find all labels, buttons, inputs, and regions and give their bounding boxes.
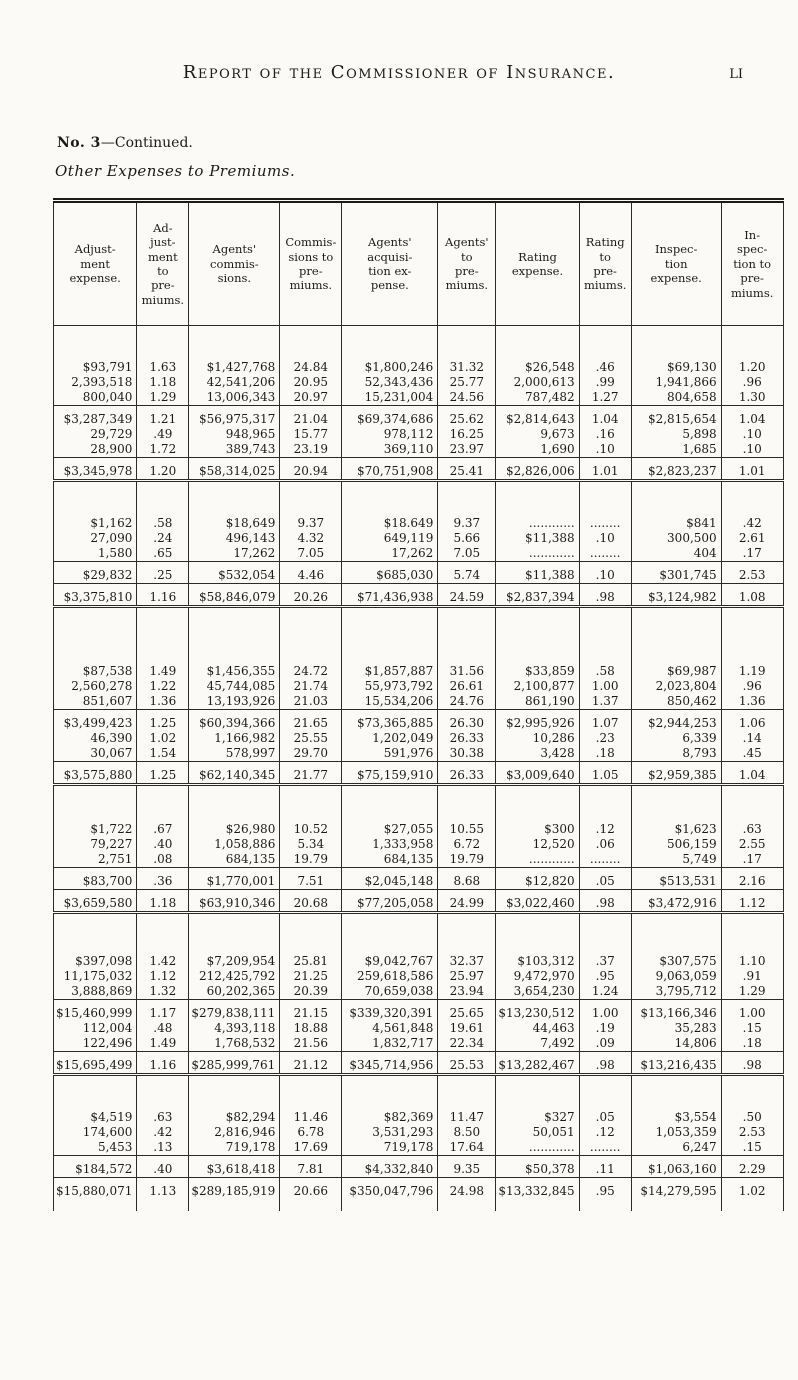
table-cell: $12,820 — [496, 874, 579, 890]
table-cell: 1.21 — [137, 412, 189, 427]
table-cell: 20.94 — [280, 464, 342, 481]
table-cell: 948,965 — [189, 427, 280, 442]
table-cell: $1,770,001 — [189, 874, 280, 890]
spacer-cell — [579, 490, 631, 516]
spacer-cell — [631, 1199, 721, 1211]
spacer-cell — [721, 1084, 783, 1110]
table-cell: 506,159 — [631, 837, 721, 852]
table-cell: 9,673 — [496, 427, 579, 442]
table-cell: $9,042,767 — [342, 954, 438, 969]
table-cell: $2,045,148 — [342, 874, 438, 890]
spacer-cell — [438, 1199, 496, 1211]
table-cell: 32.37 — [438, 954, 496, 969]
rule-cell — [496, 481, 579, 491]
table-cell: .15 — [721, 1021, 783, 1036]
table-cell: 35,283 — [631, 1021, 721, 1036]
rule-cell — [137, 481, 189, 491]
table-row: $87,5381.49$1,456,35524.72$1,857,88731.5… — [54, 664, 784, 679]
rule-cell — [721, 785, 783, 795]
table-cell: 8,793 — [631, 746, 721, 762]
rule-cell — [496, 1075, 579, 1085]
rule-cell — [137, 1075, 189, 1085]
table-cell: 2.53 — [721, 568, 783, 584]
spacer-cell — [496, 922, 579, 954]
table-cell: $60,394,366 — [189, 716, 280, 731]
table-cell: 300,500 — [631, 531, 721, 546]
page-header: Report of the Commissioner of Insurance. — [0, 62, 798, 83]
table-cell: 11,175,032 — [54, 969, 137, 984]
rule-cell — [280, 785, 342, 795]
table-cell: 404 — [631, 546, 721, 562]
spacer-cell — [438, 1084, 496, 1110]
table-cell: 25.62 — [438, 412, 496, 427]
table-cell: 1,580 — [54, 546, 137, 562]
table-row: $15,695,4991.16$285,999,76121.12$345,714… — [54, 1058, 784, 1075]
table-cell: .67 — [137, 822, 189, 837]
table-cell: ........ — [579, 1140, 631, 1156]
table-cell: 1.20 — [137, 464, 189, 481]
table-cell: 21.77 — [280, 768, 342, 785]
column-header: Adjust- ment expense. — [54, 201, 137, 326]
double-rule-row — [54, 913, 784, 923]
rule-cell — [631, 607, 721, 617]
table-header-row: Adjust- ment expense.Ad- just- ment to p… — [54, 201, 784, 326]
table-cell: 2,023,804 — [631, 679, 721, 694]
table-cell: 18.88 — [280, 1021, 342, 1036]
table-cell: $345,714,956 — [342, 1058, 438, 1075]
table-cell: $87,538 — [54, 664, 137, 679]
rule-cell — [280, 607, 342, 617]
table-cell: $3,472,916 — [631, 896, 721, 913]
table-cell: $7,209,954 — [189, 954, 280, 969]
table-cell: 19.79 — [438, 852, 496, 868]
table-cell: 1.36 — [721, 694, 783, 710]
spacer-cell — [280, 1199, 342, 1211]
table-cell: 174,600 — [54, 1125, 137, 1140]
table-cell: 1.24 — [579, 984, 631, 1000]
table-cell: $71,436,938 — [342, 590, 438, 607]
table-cell: $685,030 — [342, 568, 438, 584]
table-cell: 6.72 — [438, 837, 496, 852]
spacer-cell — [137, 922, 189, 954]
table-cell: 26.30 — [438, 716, 496, 731]
table-cell: 1,202,049 — [342, 731, 438, 746]
table-row: $1,722.67$26,98010.52$27,05510.55$300.12… — [54, 822, 784, 837]
table-cell: .23 — [579, 731, 631, 746]
table-cell: .98 — [579, 1058, 631, 1075]
rule-cell — [438, 481, 496, 491]
table-cell: $327 — [496, 1110, 579, 1125]
table-cell: 804,658 — [631, 390, 721, 406]
spacer-row — [54, 616, 784, 664]
table-row: $397,0981.42$7,209,95425.81$9,042,76732.… — [54, 954, 784, 969]
rule-cell — [54, 913, 137, 923]
table-cell: 1.19 — [721, 664, 783, 679]
rule-cell — [438, 785, 496, 795]
rule-cell — [579, 607, 631, 617]
table-cell: 1.30 — [721, 390, 783, 406]
table-cell: 21.25 — [280, 969, 342, 984]
table-cell: $69,374,686 — [342, 412, 438, 427]
spacer-cell — [280, 794, 342, 822]
table-cell: 1.63 — [137, 360, 189, 375]
table-cell: .17 — [721, 546, 783, 562]
table-cell: $29,832 — [54, 568, 137, 584]
table-cell: 1.29 — [721, 984, 783, 1000]
rule-cell — [631, 1075, 721, 1085]
table-cell: $4,332,840 — [342, 1162, 438, 1178]
table-row: 112,004.484,393,11818.884,561,84819.6144… — [54, 1021, 784, 1036]
table-cell: $2,823,237 — [631, 464, 721, 481]
table-cell: 1.07 — [579, 716, 631, 731]
table-cell: .16 — [579, 427, 631, 442]
table-cell: .13 — [137, 1140, 189, 1156]
table-cell: 1,832,717 — [342, 1036, 438, 1052]
spacer-cell — [721, 490, 783, 516]
table-cell: .24 — [137, 531, 189, 546]
table-cell: 1,166,982 — [189, 731, 280, 746]
table-cell: 6.78 — [280, 1125, 342, 1140]
spacer-cell — [54, 326, 137, 361]
table-cell: ............ — [496, 546, 579, 562]
spacer-cell — [438, 490, 496, 516]
rule-cell — [342, 481, 438, 491]
table-cell: 5,749 — [631, 852, 721, 868]
spacer-cell — [579, 922, 631, 954]
rule-cell — [137, 607, 189, 617]
table-row: $83,700.36$1,770,0017.51$2,045,1488.68$1… — [54, 874, 784, 890]
table-cell: 3,428 — [496, 746, 579, 762]
table-cell: .10 — [579, 531, 631, 546]
table-cell: ........ — [579, 852, 631, 868]
table-cell: $69,987 — [631, 664, 721, 679]
spacer-cell — [342, 616, 438, 664]
spacer-cell — [721, 794, 783, 822]
table-row: $3,375,8101.16$58,846,07920.26$71,436,93… — [54, 590, 784, 607]
table-cell: 79,227 — [54, 837, 137, 852]
table-cell: 11.47 — [438, 1110, 496, 1125]
table-cell: .50 — [721, 1110, 783, 1125]
rule-cell — [438, 1075, 496, 1085]
rule-cell — [189, 1075, 280, 1085]
table-row: 2,560,2781.2245,744,08521.7455,973,79226… — [54, 679, 784, 694]
table-cell: 9.35 — [438, 1162, 496, 1178]
spacer-row — [54, 326, 784, 361]
table-cell: $103,312 — [496, 954, 579, 969]
table-cell: 3,795,712 — [631, 984, 721, 1000]
table-cell: 7.81 — [280, 1162, 342, 1178]
table-cell: .09 — [579, 1036, 631, 1052]
table-cell: 24.84 — [280, 360, 342, 375]
table-cell: 20.97 — [280, 390, 342, 406]
table-cell: .10 — [579, 442, 631, 458]
table-cell: 1.29 — [137, 390, 189, 406]
table-cell: .96 — [721, 679, 783, 694]
table-cell: $75,159,910 — [342, 768, 438, 785]
spacer-cell — [189, 1084, 280, 1110]
column-header: Inspec- tion expense. — [631, 201, 721, 326]
table-cell: 19.61 — [438, 1021, 496, 1036]
table-cell: 55,973,792 — [342, 679, 438, 694]
spacer-cell — [280, 922, 342, 954]
table-cell: 3,654,230 — [496, 984, 579, 1000]
table-cell: 578,997 — [189, 746, 280, 762]
table-row: 174,600.422,816,9466.783,531,2938.5050,0… — [54, 1125, 784, 1140]
rule-cell — [137, 785, 189, 795]
spacer-row — [54, 922, 784, 954]
table-row: $29,832.25$532,0544.46$685,0305.74$11,38… — [54, 568, 784, 584]
table-cell: .63 — [137, 1110, 189, 1125]
spacer-cell — [342, 490, 438, 516]
rule-cell — [631, 785, 721, 795]
spacer-cell — [342, 922, 438, 954]
table-cell: 591,976 — [342, 746, 438, 762]
rule-cell — [189, 481, 280, 491]
spacer-cell — [342, 1084, 438, 1110]
table-cell: $4,519 — [54, 1110, 137, 1125]
table-cell: 6,247 — [631, 1140, 721, 1156]
table-cell: $33,859 — [496, 664, 579, 679]
rule-cell — [631, 481, 721, 491]
table-cell: 1.18 — [137, 375, 189, 390]
rule-cell — [342, 1075, 438, 1085]
table-cell: 122,496 — [54, 1036, 137, 1052]
table-cell: 13,006,343 — [189, 390, 280, 406]
table-cell: 1.72 — [137, 442, 189, 458]
table-cell: 719,178 — [342, 1140, 438, 1156]
table-cell: 9.37 — [280, 516, 342, 531]
table-row: $15,460,9991.17$279,838,11121.15$339,320… — [54, 1006, 784, 1021]
table-cell: 2,751 — [54, 852, 137, 868]
table-cell: 1.25 — [137, 768, 189, 785]
table-cell: 1.02 — [137, 731, 189, 746]
table-cell: 1.25 — [137, 716, 189, 731]
table-cell: 17.64 — [438, 1140, 496, 1156]
table-cell: 4.46 — [280, 568, 342, 584]
table-cell: $58,314,025 — [189, 464, 280, 481]
table-cell: .18 — [721, 1036, 783, 1052]
table-cell: 7.51 — [280, 874, 342, 890]
table-cell: .14 — [721, 731, 783, 746]
rule-cell — [54, 1075, 137, 1085]
table-cell: $13,230,512 — [496, 1006, 579, 1021]
table-cell: $350,047,796 — [342, 1184, 438, 1199]
table-cell: 13,193,926 — [189, 694, 280, 710]
rule-cell — [721, 913, 783, 923]
table-cell: 29.70 — [280, 746, 342, 762]
table-cell: 31.32 — [438, 360, 496, 375]
table-cell: 1.01 — [579, 464, 631, 481]
table-cell: 5.34 — [280, 837, 342, 852]
table-cell: 1.22 — [137, 679, 189, 694]
table-cell: 24.72 — [280, 664, 342, 679]
spacer-cell — [579, 1084, 631, 1110]
table-cell: $3,009,640 — [496, 768, 579, 785]
table-cell: $18.649 — [342, 516, 438, 531]
table-cell: 1,058,886 — [189, 837, 280, 852]
table-cell: 21.15 — [280, 1006, 342, 1021]
column-header: In- spec- tion to pre- miums. — [721, 201, 783, 326]
table-cell: 6,339 — [631, 731, 721, 746]
table-row: 2,751.08684,13519.79684,13519.79........… — [54, 852, 784, 868]
table-cell: $3,659,580 — [54, 896, 137, 913]
table-cell: 800,040 — [54, 390, 137, 406]
table-cell: $1,427,768 — [189, 360, 280, 375]
table-cell: 42,541,206 — [189, 375, 280, 390]
table-cell: 1,690 — [496, 442, 579, 458]
table-cell: 23.94 — [438, 984, 496, 1000]
table-cell: 7.05 — [280, 546, 342, 562]
table-cell: .42 — [721, 516, 783, 531]
table-cell: $285,999,761 — [189, 1058, 280, 1075]
table-cell: 25.41 — [438, 464, 496, 481]
spacer-cell — [280, 616, 342, 664]
rule-cell — [579, 481, 631, 491]
table-cell: 1.05 — [579, 768, 631, 785]
table-cell: 369,110 — [342, 442, 438, 458]
table-cell: $27,055 — [342, 822, 438, 837]
table-cell: 26.33 — [438, 768, 496, 785]
rule-cell — [342, 913, 438, 923]
table-cell: 20.66 — [280, 1184, 342, 1199]
spacer-row — [54, 1199, 784, 1211]
spacer-row — [54, 1084, 784, 1110]
table-cell: $3,345,978 — [54, 464, 137, 481]
table-cell: 8.68 — [438, 874, 496, 890]
table-cell: $50,378 — [496, 1162, 579, 1178]
table-cell: 1.20 — [721, 360, 783, 375]
table-cell: $397,098 — [54, 954, 137, 969]
table-cell: 4,393,118 — [189, 1021, 280, 1036]
rule-cell — [438, 607, 496, 617]
table-cell: .17 — [721, 852, 783, 868]
table-cell: 1,941,866 — [631, 375, 721, 390]
table-cell: 1.32 — [137, 984, 189, 1000]
table-cell: $14,279,595 — [631, 1184, 721, 1199]
table-cell: $1,063,160 — [631, 1162, 721, 1178]
table-cell: 851,607 — [54, 694, 137, 710]
spacer-cell — [721, 922, 783, 954]
table-cell: $13,216,435 — [631, 1058, 721, 1075]
table-subtitle: Other Expenses to Premiums. — [55, 162, 295, 180]
table-row: 1,580.6517,2627.0517,2627.05............… — [54, 546, 784, 562]
table-number: No. 3 — [57, 135, 101, 151]
table-cell: $15,460,999 — [54, 1006, 137, 1021]
rule-cell — [280, 913, 342, 923]
table-cell: 2.55 — [721, 837, 783, 852]
table-cell: $307,575 — [631, 954, 721, 969]
spacer-cell — [342, 326, 438, 361]
table-cell: 21.74 — [280, 679, 342, 694]
table-cell: .25 — [137, 568, 189, 584]
table-cell: .19 — [579, 1021, 631, 1036]
table-cell: 16.25 — [438, 427, 496, 442]
rule-cell — [721, 607, 783, 617]
double-rule-row — [54, 1075, 784, 1085]
table-cell: 861,190 — [496, 694, 579, 710]
table-cell: 30,067 — [54, 746, 137, 762]
spacer-cell — [579, 616, 631, 664]
table-cell: $13,282,467 — [496, 1058, 579, 1075]
rule-cell — [579, 913, 631, 923]
table-row: 851,6071.3613,193,92621.0315,534,20624.7… — [54, 694, 784, 710]
table-cell: 4,561,848 — [342, 1021, 438, 1036]
table-cell: $2,826,006 — [496, 464, 579, 481]
document-page: Report of the Commissioner of Insurance.… — [0, 0, 798, 1380]
table-cell: 22.34 — [438, 1036, 496, 1052]
table-cell: 2.61 — [721, 531, 783, 546]
table-cell: $2,995,926 — [496, 716, 579, 731]
rule-cell — [631, 913, 721, 923]
spacer-cell — [54, 616, 137, 664]
table-cell: 25.81 — [280, 954, 342, 969]
table-row: 79,227.401,058,8865.341,333,9586.7212,52… — [54, 837, 784, 852]
table-cell: 21.03 — [280, 694, 342, 710]
table-cell: .15 — [721, 1140, 783, 1156]
table-cell: 978,112 — [342, 427, 438, 442]
table-cell: $1,722 — [54, 822, 137, 837]
table-cell: ........ — [579, 546, 631, 562]
table-cell: $11,388 — [496, 531, 579, 546]
table-cell: ............ — [496, 1140, 579, 1156]
table-cell: $2,944,253 — [631, 716, 721, 731]
rule-cell — [579, 1075, 631, 1085]
table-cell: $2,959,385 — [631, 768, 721, 785]
table-row: $15,880,0711.13$289,185,91920.66$350,047… — [54, 1184, 784, 1199]
spacer-cell — [54, 1084, 137, 1110]
table-cell: 1.49 — [137, 1036, 189, 1052]
table-cell: 25.65 — [438, 1006, 496, 1021]
table-cell: 3,888,869 — [54, 984, 137, 1000]
table-cell: 23.97 — [438, 442, 496, 458]
table-row: 5,453.13719,17817.69719,17817.64........… — [54, 1140, 784, 1156]
table-cell: 850,462 — [631, 694, 721, 710]
table-cell: 1.08 — [721, 590, 783, 607]
table-cell: 1.27 — [579, 390, 631, 406]
spacer-cell — [496, 1199, 579, 1211]
table-cell: .05 — [579, 874, 631, 890]
rule-cell — [54, 481, 137, 491]
table-cell: 29,729 — [54, 427, 137, 442]
table-cell: 1,333,958 — [342, 837, 438, 852]
spacer-cell — [342, 794, 438, 822]
table-cell: 1.10 — [721, 954, 783, 969]
spacer-cell — [280, 1084, 342, 1110]
page-number: li — [729, 62, 743, 83]
column-header: Agents' acquisi- tion ex- pense. — [342, 201, 438, 326]
column-header: Agents' commis- sions. — [189, 201, 280, 326]
spacer-cell — [438, 922, 496, 954]
table-cell: $2,837,394 — [496, 590, 579, 607]
rule-cell — [54, 607, 137, 617]
table-cell: $77,205,058 — [342, 896, 438, 913]
spacer-row — [54, 490, 784, 516]
table-cell: 1.12 — [137, 969, 189, 984]
rule-cell — [579, 785, 631, 795]
table-cell: 8.50 — [438, 1125, 496, 1140]
spacer-cell — [721, 1199, 783, 1211]
table-cell: 1.04 — [579, 412, 631, 427]
table-cell: 28,900 — [54, 442, 137, 458]
table-cell: .96 — [721, 375, 783, 390]
rule-cell — [721, 1075, 783, 1085]
table-cell: 1.16 — [137, 1058, 189, 1075]
table-cell: 12,520 — [496, 837, 579, 852]
table-cell: 684,135 — [342, 852, 438, 868]
table-cell: 7.05 — [438, 546, 496, 562]
table-cell: .10 — [721, 427, 783, 442]
table-cell: 2.16 — [721, 874, 783, 890]
